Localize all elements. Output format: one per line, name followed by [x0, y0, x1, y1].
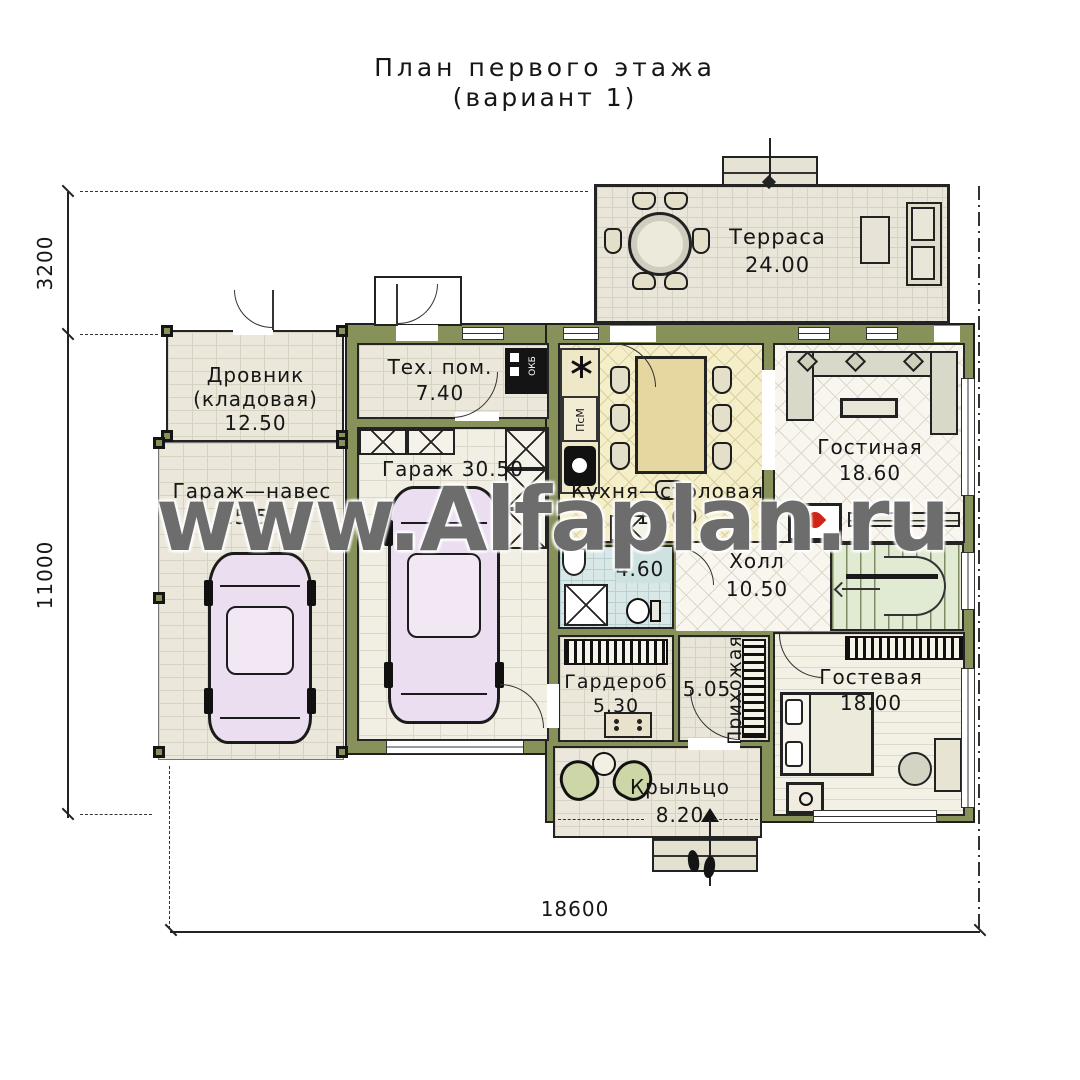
window [798, 327, 830, 340]
room-woodshed-name: Дровник [168, 364, 343, 386]
boiler-label: ОКБ [528, 355, 540, 377]
post-icon [153, 746, 165, 758]
room-porch-area: 8.20 [600, 804, 760, 826]
chair-icon [632, 272, 656, 290]
room-woodshed-name2: (кладовая) [168, 388, 343, 410]
round-dining-table [628, 212, 692, 276]
toilet-bowl-icon [626, 598, 650, 624]
door-leaf [272, 290, 274, 330]
door-swing-arc [234, 290, 272, 328]
room-wardrobe-area: 5.30 [558, 696, 674, 717]
dim-extension-line [80, 191, 588, 192]
coffee-table [840, 398, 898, 418]
car-wheel [204, 580, 213, 606]
post-icon [153, 437, 165, 449]
door-opening [233, 327, 273, 335]
room-living-name: Гостиная [775, 436, 965, 458]
toilet-tank [650, 600, 661, 622]
car-line [220, 585, 299, 587]
dresser-knob [614, 726, 619, 731]
porch-dash-line [558, 819, 644, 820]
chair-icon [712, 404, 732, 432]
car-line [401, 693, 486, 695]
dishwasher-icon: ПсМ [562, 396, 598, 442]
watermark: www.Alfaplan.ru [112, 468, 992, 571]
garage-shelf [407, 429, 455, 455]
porch-dash-line [714, 819, 758, 820]
window [961, 668, 975, 808]
dim-tick [165, 924, 178, 937]
nightstand-detail [799, 792, 813, 806]
sofa-right-wing [930, 351, 958, 435]
room-guest-name: Гостевая [778, 666, 964, 688]
car-wheel [204, 688, 213, 714]
room-woodshed-area: 12.50 [168, 412, 343, 434]
bench-cushion [911, 207, 935, 241]
left-dimension-line [67, 192, 69, 818]
shower-icon [564, 584, 608, 626]
dim-tick [974, 924, 987, 937]
room-wardrobe-name: Гардероб [558, 672, 674, 693]
bottom-dimension-line [170, 931, 980, 933]
post-icon [336, 325, 348, 337]
desk [934, 738, 962, 792]
guest-wardrobe-rack [845, 636, 963, 660]
terrace-bench [906, 202, 942, 286]
room-guest-area: 18.00 [778, 692, 964, 714]
chair-icon [604, 228, 622, 254]
dim-label-11000: 11000 [34, 535, 58, 615]
window [866, 327, 898, 340]
car-top-view [208, 552, 312, 744]
post-icon [336, 746, 348, 758]
car-wheel [307, 688, 316, 714]
room-entry-name: Прихожая [725, 635, 745, 745]
room-tech-name: Тех. пом. [365, 356, 515, 378]
room-porch-name: Крыльцо [600, 776, 760, 798]
axis-line [769, 138, 771, 186]
post-icon [161, 325, 173, 337]
car-wheel [384, 662, 393, 688]
room-hall-area: 10.50 [712, 578, 802, 600]
chair-icon [712, 442, 732, 470]
room-terrace-name: Терраса [690, 226, 865, 250]
post-icon [336, 437, 348, 449]
room-terrace-area: 24.00 [690, 254, 865, 278]
car-wheel [307, 580, 316, 606]
window [462, 327, 504, 340]
car-roof [226, 606, 295, 675]
pillow [785, 741, 803, 767]
door-leaf [396, 284, 398, 326]
car-line [220, 717, 299, 719]
dresser-knob [614, 719, 619, 724]
door-opening [396, 325, 438, 341]
wardrobe-hanger-rack [564, 639, 668, 665]
desk-chair [898, 752, 932, 786]
stair-rail [846, 574, 938, 579]
garage-shelf [359, 429, 407, 455]
dim-extension-line [80, 814, 152, 815]
chair-icon [664, 272, 688, 290]
dishwasher-label: ПсМ [574, 407, 588, 433]
terrace-door-opening [934, 326, 960, 342]
plan-title-line1: План первого этажа [295, 54, 795, 82]
chair-icon [610, 404, 630, 432]
dim-label-18600: 18600 [500, 898, 650, 920]
wide-opening [762, 370, 775, 470]
window [563, 327, 599, 340]
post-icon [153, 592, 165, 604]
dim-label-3200: 3200 [34, 223, 58, 303]
stove-icon [570, 356, 592, 378]
chair-icon [610, 442, 630, 470]
bench-cushion [911, 246, 935, 280]
chair-icon [712, 366, 732, 394]
dim-extension-line [169, 766, 170, 929]
dresser-knob [637, 719, 642, 724]
terrace-door-opening [610, 326, 656, 342]
room-tech-area: 7.40 [365, 382, 515, 404]
chair-icon [664, 192, 688, 210]
plan-title-line2: (вариант 1) [295, 84, 795, 112]
dim-extension-line [80, 334, 158, 335]
garage-door-opening [386, 740, 524, 754]
chair-icon [632, 192, 656, 210]
window [813, 810, 937, 823]
porch-table [592, 752, 616, 776]
dresser-knob [637, 726, 642, 731]
floor-plan-canvas: План первого этажа (вариант 1) 3200 1100… [0, 0, 1080, 1080]
